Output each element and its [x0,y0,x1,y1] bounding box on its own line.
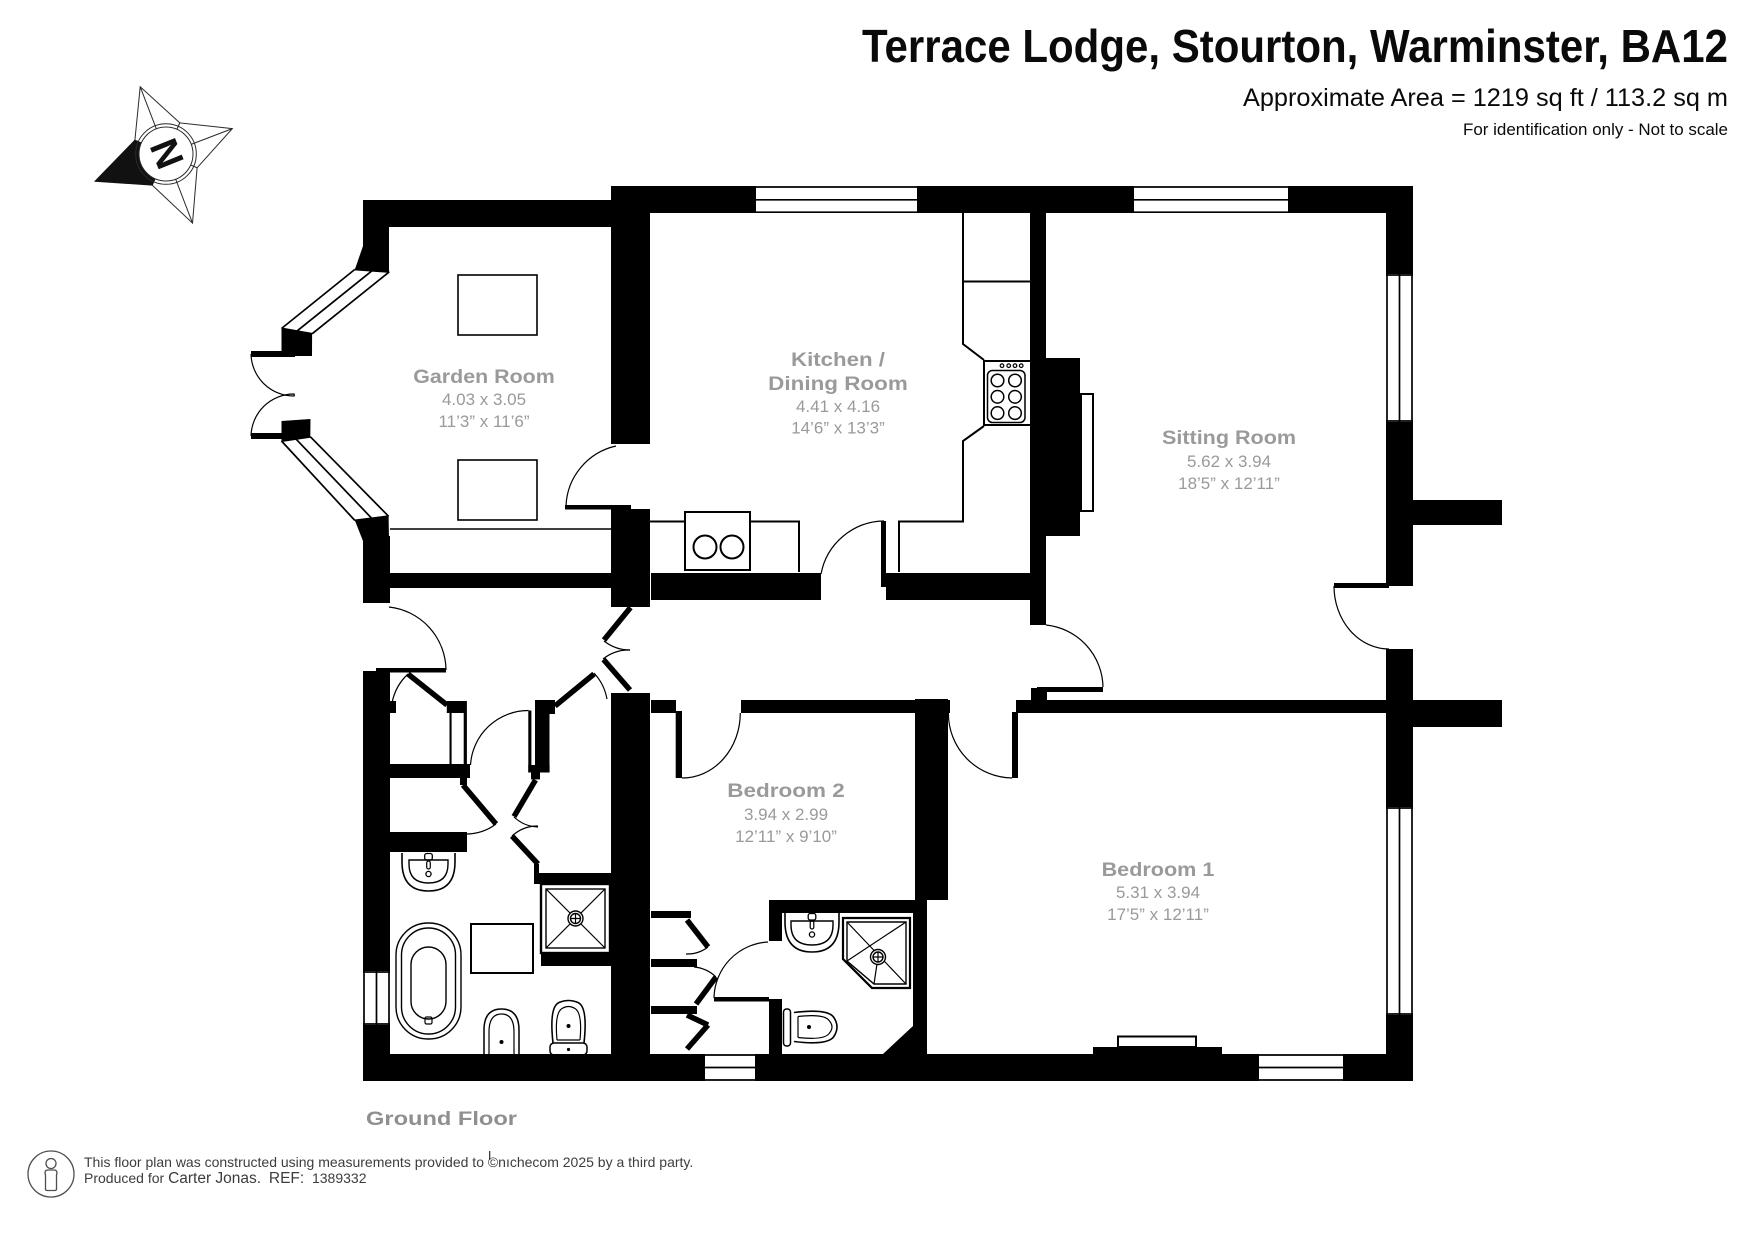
svg-text:Dining Room: Dining Room [768,374,908,395]
svg-text:Produced for Carter Jonas. RE: Produced for Carter Jonas. REF: 1389332 [84,1170,367,1187]
svg-text:4.41 x 4.16: 4.41 x 4.16 [796,397,880,416]
svg-text:11’3” x 11’6”: 11’3” x 11’6” [438,412,529,431]
svg-text:18’5” x 12’11”: 18’5” x 12’11” [1178,474,1280,493]
svg-text:For identification only - Not: For identification only - Not to scale [1463,120,1728,139]
svg-text:This floor plan was constructe: This floor plan was constructed using me… [84,1154,693,1170]
svg-text:Terrace Lodge, Stourton, Warmi: Terrace Lodge, Stourton, Warminster, BA1… [862,20,1728,72]
svg-text:Ground Floor: Ground Floor [366,1108,517,1130]
svg-text:14’6” x 13’3”: 14’6” x 13’3” [791,419,885,438]
svg-text:Kitchen /: Kitchen / [791,350,886,371]
svg-text:Sitting Room: Sitting Room [1162,428,1296,449]
svg-text:5.31 x 3.94: 5.31 x 3.94 [1116,883,1200,902]
svg-text:Garden Room: Garden Room [413,367,555,388]
svg-text:Bedroom 2: Bedroom 2 [727,781,845,802]
svg-text:Bedroom 1: Bedroom 1 [1102,860,1215,881]
svg-text:12’11” x 9’10”: 12’11” x 9’10” [735,827,837,846]
svg-text:Approximate Area = 1219 sq ft: Approximate Area = 1219 sq ft / 113.2 sq… [1243,84,1728,112]
svg-text:4.03 x 3.05: 4.03 x 3.05 [442,390,526,409]
svg-text:3.94 x 2.99: 3.94 x 2.99 [744,805,828,824]
svg-text:5.62 x 3.94: 5.62 x 3.94 [1187,452,1271,471]
svg-text:17’5” x 12’11”: 17’5” x 12’11” [1107,905,1209,924]
